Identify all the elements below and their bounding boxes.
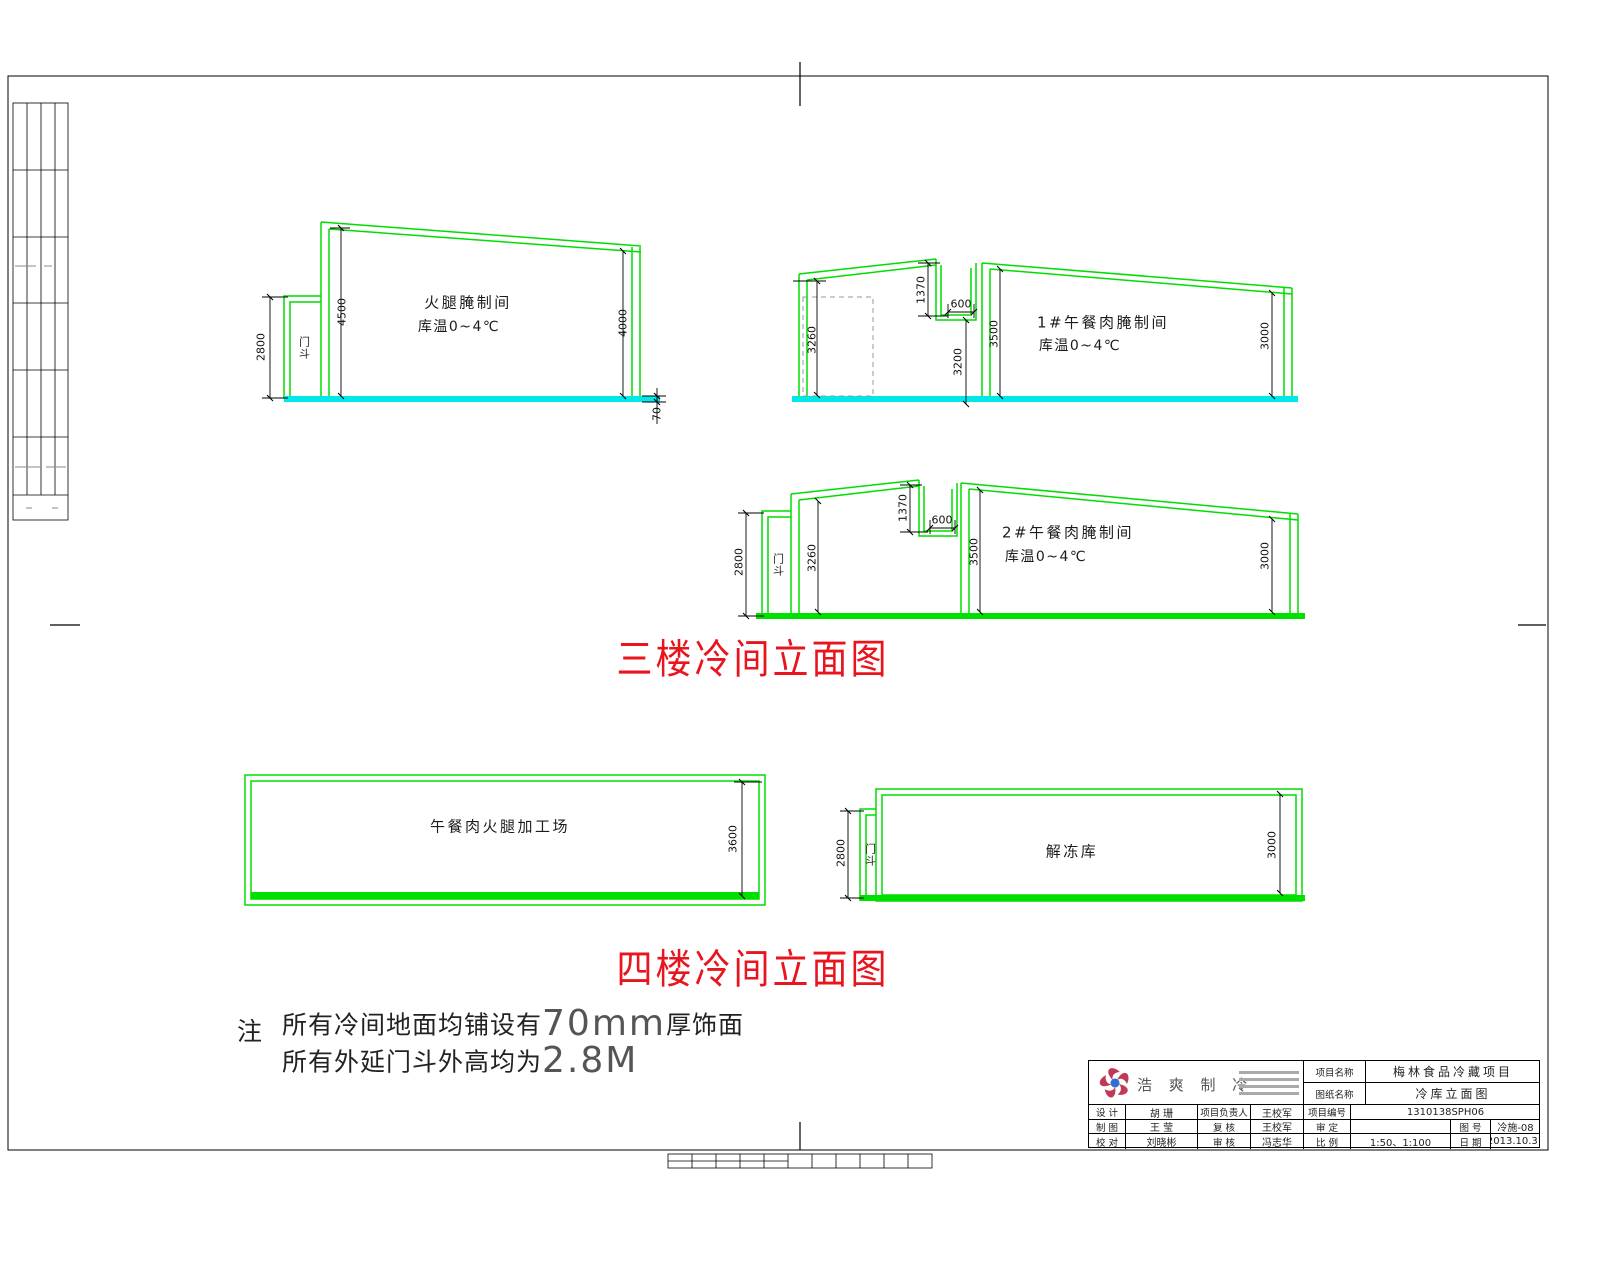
label-lunch2-vestibule: 门斗 xyxy=(773,553,784,577)
scale-label: 比 例 xyxy=(1304,1134,1351,1149)
note-mark: 注 xyxy=(237,1012,263,1048)
label-workshop-room: 午餐肉火腿加工场 xyxy=(430,816,570,837)
project-number-value: 1310138SPH06 xyxy=(1351,1105,1540,1120)
dim-ham-left-height: 4500 xyxy=(336,298,349,326)
date-label: 日 期 xyxy=(1451,1134,1491,1149)
label-ham-vestibule: 门斗 xyxy=(299,336,310,360)
label-lunch2-temp: 库温0~4℃ xyxy=(1005,546,1087,566)
dim-lunch2-outer-height: 2800 xyxy=(733,548,746,576)
dim-lunch2-left-height: 3260 xyxy=(806,544,819,572)
dim-ham-right-height: 4000 xyxy=(617,309,630,337)
project-number-label: 项目编号 xyxy=(1304,1105,1351,1120)
scale-value: 1:50、1:100 xyxy=(1351,1134,1451,1149)
dim-lunch2-right-height: 3000 xyxy=(1259,542,1272,570)
label-ham-temp: 库温0~4℃ xyxy=(418,316,500,336)
proofreader-value: 刘晓彬 xyxy=(1126,1134,1198,1149)
scale-bar xyxy=(668,1154,932,1168)
title-floor4-elevation: 四楼冷间立面图 xyxy=(616,937,889,995)
dim-workshop-height: 3600 xyxy=(727,825,740,853)
elevation-lunch2-floor xyxy=(756,613,1305,619)
date-value: 2013.10.31 xyxy=(1491,1134,1540,1149)
elevation-thaw-floor xyxy=(860,895,1305,901)
reviewer-label: 审 核 xyxy=(1198,1134,1251,1149)
dim-lunch1-mid-height: 3200 xyxy=(952,348,965,376)
note-line2: 所有外延门斗外高均为2.8M xyxy=(282,1040,638,1081)
company-logo-pinwheel-icon xyxy=(1097,1065,1133,1101)
drawing-name-label: 图纸名称 xyxy=(1304,1083,1366,1105)
label-lunch2-room: 2#午餐肉腌制间 xyxy=(1002,522,1134,543)
note-mark-text: 注 xyxy=(237,1017,263,1046)
dim-thaw-right-height: 3000 xyxy=(1266,831,1279,859)
dim-ham-outer-height: 2800 xyxy=(255,333,268,361)
note-line1-pre: 所有冷间地面均铺设有 xyxy=(282,1011,542,1040)
left-signature-strip xyxy=(13,103,68,520)
approver-label: 审 定 xyxy=(1304,1120,1351,1134)
drawing-name-text: 冷库立面图 xyxy=(1415,1085,1490,1102)
proofreader-label: 校 对 xyxy=(1089,1134,1126,1149)
note-line1-post: 厚饰面 xyxy=(666,1011,744,1040)
dim-thaw-outer-height: 2800 xyxy=(835,839,848,867)
dim-lunch2-notch-height: 1370 xyxy=(897,494,910,522)
checker-label: 复 核 xyxy=(1198,1120,1251,1134)
label-lunch1-temp: 库温0~4℃ xyxy=(1039,335,1121,355)
drawing-sheet: 2800 门斗 4500 火腿腌制间 库温0~4℃ 4000 70 3260 1… xyxy=(0,0,1600,1280)
note-line1: 所有冷间地面均铺设有70mm厚饰面 xyxy=(282,1003,744,1044)
label-thaw-vestibule: 门斗 xyxy=(865,843,876,867)
dim-lunch1-right-height: 3000 xyxy=(1259,322,1272,350)
project-name-text: 梅林食品冷藏项目 xyxy=(1393,1063,1513,1080)
dim-lunch2-notch-width: 600 xyxy=(932,514,953,527)
project-name-value: 梅林食品冷藏项目 xyxy=(1366,1061,1540,1083)
title-block: 浩 爽 制 冷 项目名称 梅林食品冷藏项目 图纸名称 冷库立面图 设 计 胡 珊… xyxy=(1088,1060,1540,1148)
dim-lunch1-left-height: 3260 xyxy=(806,326,819,354)
note-line2-pre: 所有外延门斗外高均为 xyxy=(282,1048,542,1077)
dim-lunch2-wall-height: 3500 xyxy=(968,538,981,566)
strip-illegible-marks xyxy=(15,266,66,508)
dim-lunch1-notch-width: 600 xyxy=(951,298,972,311)
label-thaw-room: 解冻库 xyxy=(1046,841,1099,862)
drawing-name-value: 冷库立面图 xyxy=(1366,1083,1540,1105)
dim-lunch1-wall-height: 3500 xyxy=(988,320,1001,348)
elevation-workshop-outline xyxy=(245,775,765,905)
elevation-workshop-floor xyxy=(251,892,759,899)
approver-value xyxy=(1351,1120,1451,1134)
elevation-lunch1-dims xyxy=(793,263,1272,404)
reviewer-value: 冯志华 xyxy=(1251,1134,1304,1149)
sheet-number-label: 图 号 xyxy=(1451,1120,1491,1134)
note-line2-value: 2.8M xyxy=(542,1040,638,1081)
label-ham-room: 火腿腌制间 xyxy=(424,292,512,313)
company-contact-lines xyxy=(1239,1067,1299,1099)
designer-label: 设 计 xyxy=(1089,1105,1126,1120)
project-lead-label: 项目负责人 xyxy=(1198,1105,1251,1120)
sheet-number-value: 冷施-08 xyxy=(1491,1120,1540,1134)
company-name: 浩 爽 制 冷 xyxy=(1137,1074,1253,1095)
elevation-lunch1-floor xyxy=(792,396,1298,402)
checker-value: 王校军 xyxy=(1251,1120,1304,1134)
elevation-ham-floor xyxy=(284,396,660,402)
project-name-label: 项目名称 xyxy=(1304,1061,1366,1083)
note-line1-value: 70mm xyxy=(542,1003,666,1044)
label-lunch1-room: 1#午餐肉腌制间 xyxy=(1037,312,1169,333)
dim-ham-floor-thickness: 70 xyxy=(651,407,664,421)
designer-value: 胡 珊 xyxy=(1126,1105,1198,1120)
drafter-value: 王 莹 xyxy=(1126,1120,1198,1134)
company-cell: 浩 爽 制 冷 xyxy=(1089,1061,1304,1105)
project-lead-value: 王校军 xyxy=(1251,1105,1304,1120)
title-floor3-elevation: 三楼冷间立面图 xyxy=(616,627,889,685)
dim-lunch1-notch-height: 1370 xyxy=(915,276,928,304)
drafter-label: 制 图 xyxy=(1089,1120,1126,1134)
